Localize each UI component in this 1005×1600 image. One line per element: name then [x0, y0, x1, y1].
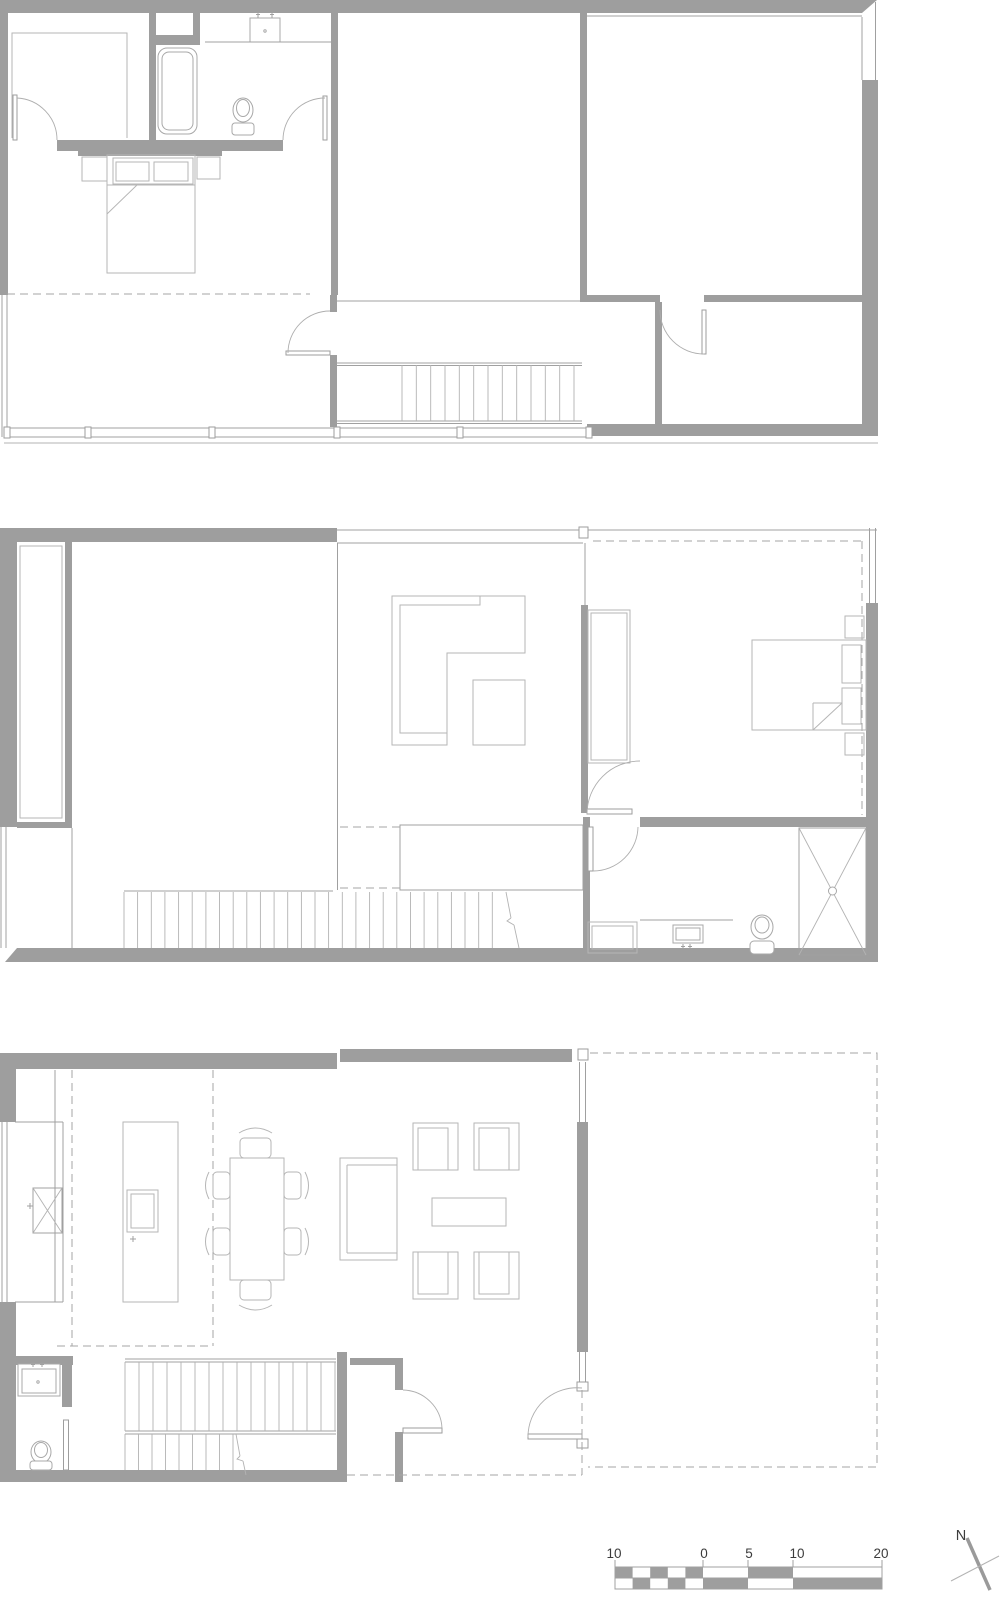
wall — [581, 605, 588, 813]
wall — [350, 1358, 401, 1365]
window — [862, 2, 876, 80]
nightstand — [197, 157, 220, 179]
glass-facade — [337, 528, 877, 603]
scale-label: 10 — [789, 1546, 804, 1561]
patio-dashed-outline — [588, 1053, 877, 1467]
floor-above-dashed — [593, 541, 862, 815]
wall — [149, 8, 156, 140]
stairwell — [124, 825, 583, 948]
wall — [331, 8, 338, 295]
column — [577, 1382, 588, 1391]
wall — [577, 1122, 588, 1352]
exterior-wall — [0, 1302, 16, 1482]
nightstand — [845, 616, 864, 638]
ground-floor-plan — [0, 1049, 877, 1482]
middle-floor-plan — [0, 527, 878, 962]
floor-above-dashed — [57, 1070, 213, 1346]
stair-break-line — [506, 892, 519, 948]
sofa — [340, 1158, 397, 1260]
column — [579, 527, 588, 538]
exterior-wall — [17, 948, 878, 962]
glass-facade — [2, 1122, 7, 1302]
wall — [587, 424, 878, 436]
kitchen-island — [123, 1122, 178, 1302]
wardrobe — [12, 33, 127, 138]
door-swing — [403, 1388, 588, 1448]
toilet — [232, 98, 254, 135]
wall — [640, 817, 868, 827]
wall — [65, 542, 72, 828]
wall — [330, 295, 337, 312]
mullions — [4, 427, 592, 438]
ottoman — [473, 680, 525, 745]
wall — [17, 822, 72, 828]
exterior-wall — [0, 0, 877, 13]
armchair — [413, 1123, 458, 1170]
wall — [155, 35, 200, 45]
sink — [205, 12, 331, 42]
bathtub — [158, 48, 197, 134]
door-swing — [587, 761, 640, 871]
wall — [580, 10, 587, 302]
wall — [704, 295, 862, 302]
armchair — [474, 1252, 519, 1299]
armchair — [413, 1252, 458, 1299]
scale-label: 5 — [745, 1546, 753, 1561]
exterior-wall — [866, 603, 878, 961]
exterior-wall — [2, 1053, 337, 1069]
door-leaf — [64, 1420, 69, 1470]
bed — [752, 616, 866, 755]
door-swing — [13, 95, 706, 355]
coffee-table — [432, 1198, 506, 1226]
scale-label: 20 — [873, 1546, 888, 1561]
kitchen-counter — [15, 1070, 63, 1302]
stairs — [125, 1359, 336, 1475]
nightstand — [845, 733, 864, 755]
floor-plans-svg: 10 0 5 10 20 N — [0, 0, 1005, 1600]
exterior-wall — [0, 0, 8, 295]
scale-label: 0 — [700, 1546, 708, 1561]
wall — [62, 1365, 72, 1407]
armchair — [474, 1123, 519, 1170]
wall — [580, 295, 660, 302]
wall — [57, 140, 283, 151]
exterior-wall — [2, 1470, 347, 1482]
nightstand — [82, 157, 107, 181]
glass-facade — [1, 827, 6, 948]
exterior-wall — [862, 80, 878, 436]
drawing-sheet: 10 0 5 10 20 N — [0, 0, 1005, 1600]
sofa — [392, 596, 525, 745]
exterior-wall — [340, 1049, 572, 1062]
wall — [337, 1352, 347, 1470]
wardrobe — [20, 546, 62, 818]
exterior-wall — [5, 948, 17, 962]
north-needle — [967, 1538, 990, 1590]
exterior-wall — [0, 1053, 16, 1122]
wall — [395, 1358, 403, 1390]
exterior-wall — [0, 528, 17, 827]
exterior-wall — [3, 528, 337, 542]
toilet — [750, 915, 774, 954]
north-arrow: N — [951, 1528, 999, 1590]
bed — [82, 155, 220, 273]
shower — [799, 828, 866, 955]
dining-chairs — [206, 1128, 309, 1310]
north-label: N — [956, 1528, 966, 1544]
column — [578, 1049, 588, 1060]
stair-break-line — [236, 1434, 246, 1475]
stairs — [337, 363, 582, 424]
porch-dashed-outline — [347, 1390, 582, 1475]
wall — [330, 355, 337, 427]
upper-floor-plan — [0, 0, 878, 443]
sink — [18, 1362, 60, 1396]
cabinet — [588, 610, 630, 763]
scale-bar: 10 0 5 10 20 — [606, 1546, 888, 1589]
dining-table — [230, 1158, 284, 1280]
scale-label: 10 — [606, 1546, 621, 1561]
sink — [673, 925, 703, 949]
toilet — [30, 1441, 52, 1470]
